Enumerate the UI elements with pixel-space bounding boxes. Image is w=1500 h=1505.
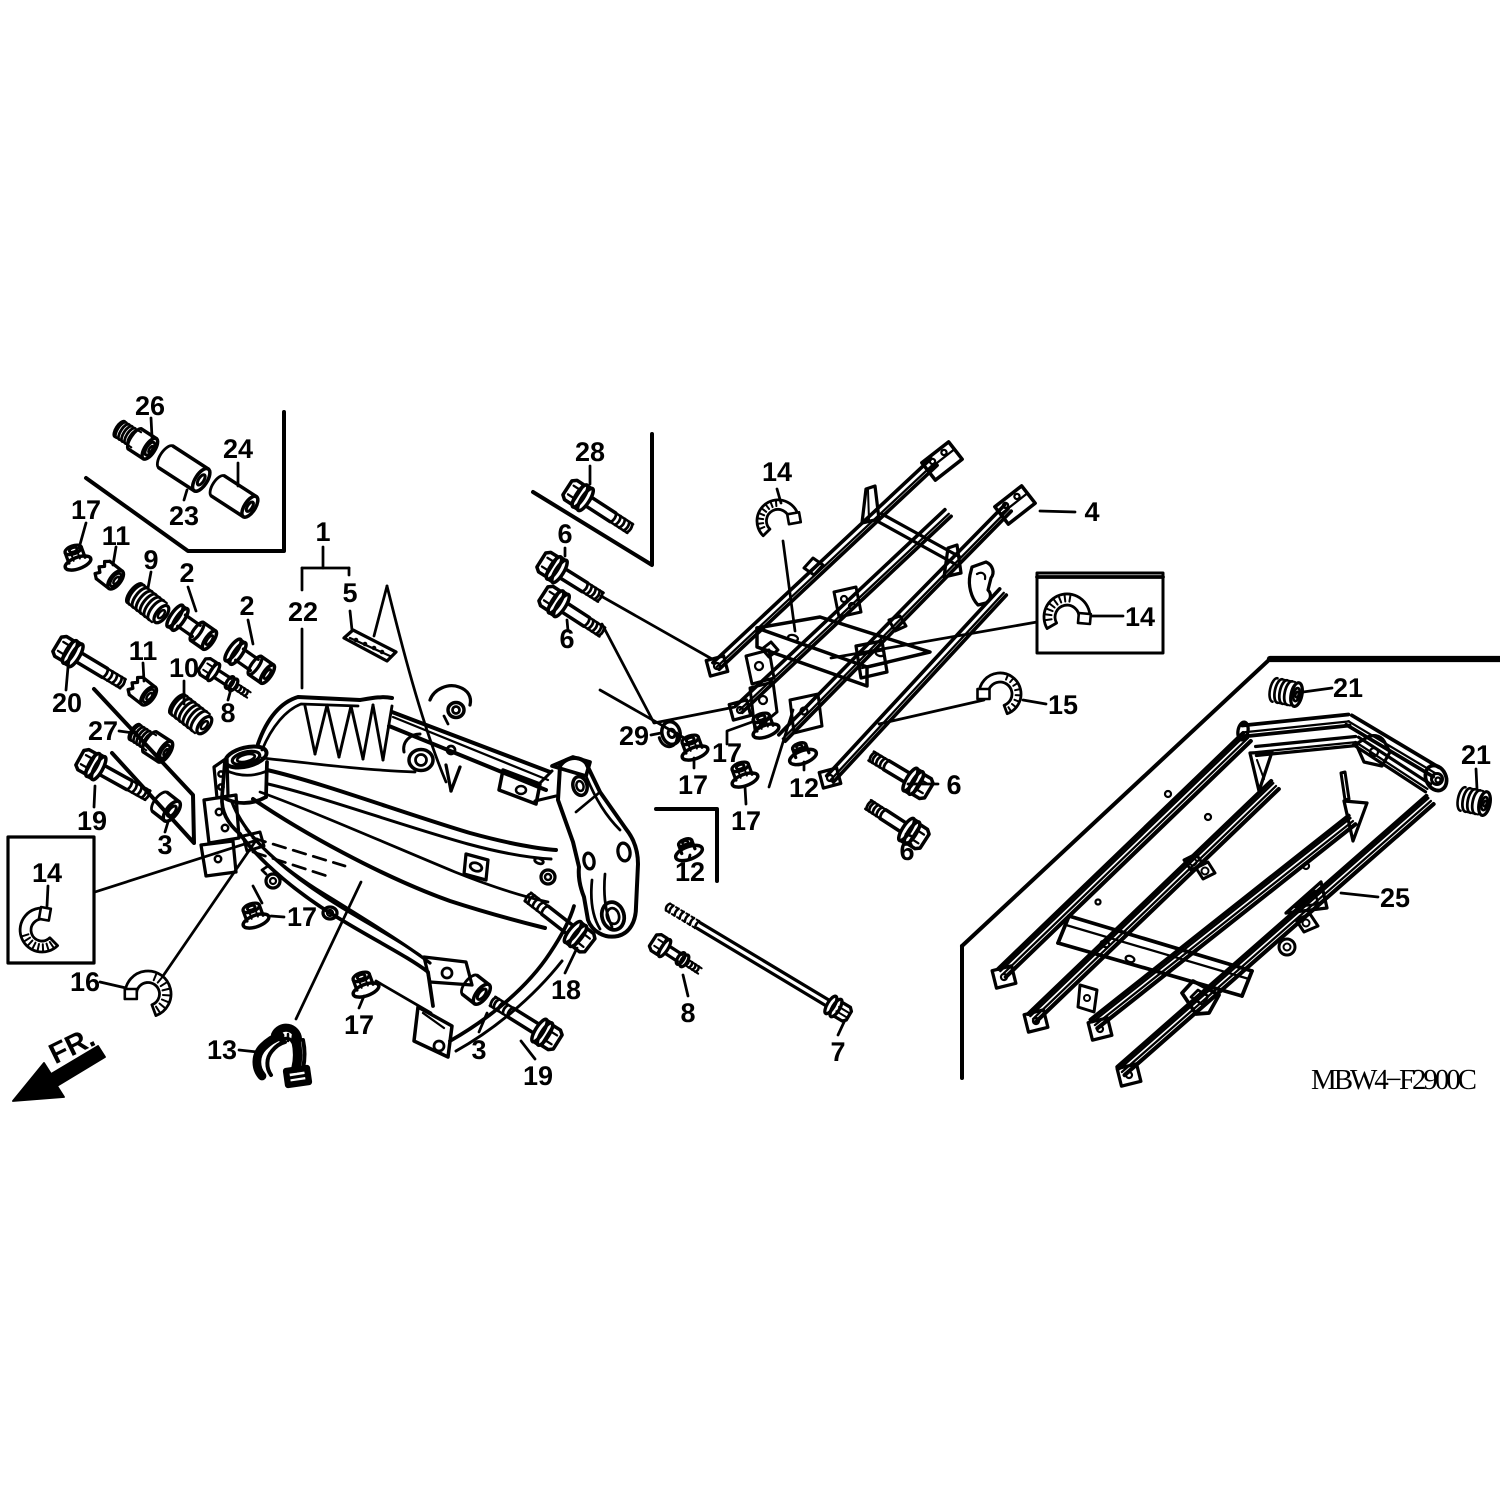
svg-text:29: 29	[619, 721, 649, 751]
svg-text:16: 16	[70, 967, 100, 997]
svg-text:26: 26	[135, 391, 165, 421]
svg-text:14: 14	[762, 457, 792, 487]
svg-text:5: 5	[342, 578, 357, 608]
svg-text:11: 11	[129, 636, 158, 666]
svg-text:2: 2	[179, 558, 194, 588]
svg-text:1: 1	[315, 517, 330, 547]
svg-text:14: 14	[1125, 602, 1155, 632]
svg-text:21: 21	[1333, 673, 1363, 703]
svg-text:19: 19	[523, 1061, 553, 1091]
svg-text:8: 8	[220, 698, 235, 728]
svg-text:27: 27	[88, 716, 118, 746]
svg-text:18: 18	[551, 975, 581, 1005]
svg-text:12: 12	[789, 773, 819, 803]
svg-text:17: 17	[678, 770, 708, 800]
svg-text:17: 17	[344, 1010, 374, 1040]
svg-text:13: 13	[207, 1035, 237, 1065]
svg-text:6: 6	[557, 519, 572, 549]
svg-text:2: 2	[239, 591, 254, 621]
svg-text:15: 15	[1048, 690, 1078, 720]
svg-text:22: 22	[288, 597, 318, 627]
svg-text:MBW4−F2900C: MBW4−F2900C	[1311, 1064, 1477, 1096]
svg-text:9: 9	[143, 545, 158, 575]
svg-text:17: 17	[71, 495, 101, 525]
svg-text:14: 14	[32, 858, 62, 888]
svg-text:23: 23	[169, 501, 199, 531]
svg-text:17: 17	[287, 902, 317, 932]
svg-text:3: 3	[157, 830, 172, 860]
svg-text:6: 6	[946, 770, 961, 800]
svg-text:10: 10	[169, 653, 199, 683]
svg-text:20: 20	[52, 688, 82, 718]
svg-text:21: 21	[1461, 740, 1491, 770]
svg-text:25: 25	[1380, 883, 1410, 913]
svg-text:4: 4	[1084, 497, 1099, 527]
svg-text:8: 8	[680, 998, 695, 1028]
svg-text:24: 24	[223, 434, 253, 464]
svg-text:17: 17	[731, 806, 761, 836]
svg-text:28: 28	[575, 437, 605, 467]
svg-text:7: 7	[830, 1037, 845, 1067]
svg-text:19: 19	[77, 806, 107, 836]
